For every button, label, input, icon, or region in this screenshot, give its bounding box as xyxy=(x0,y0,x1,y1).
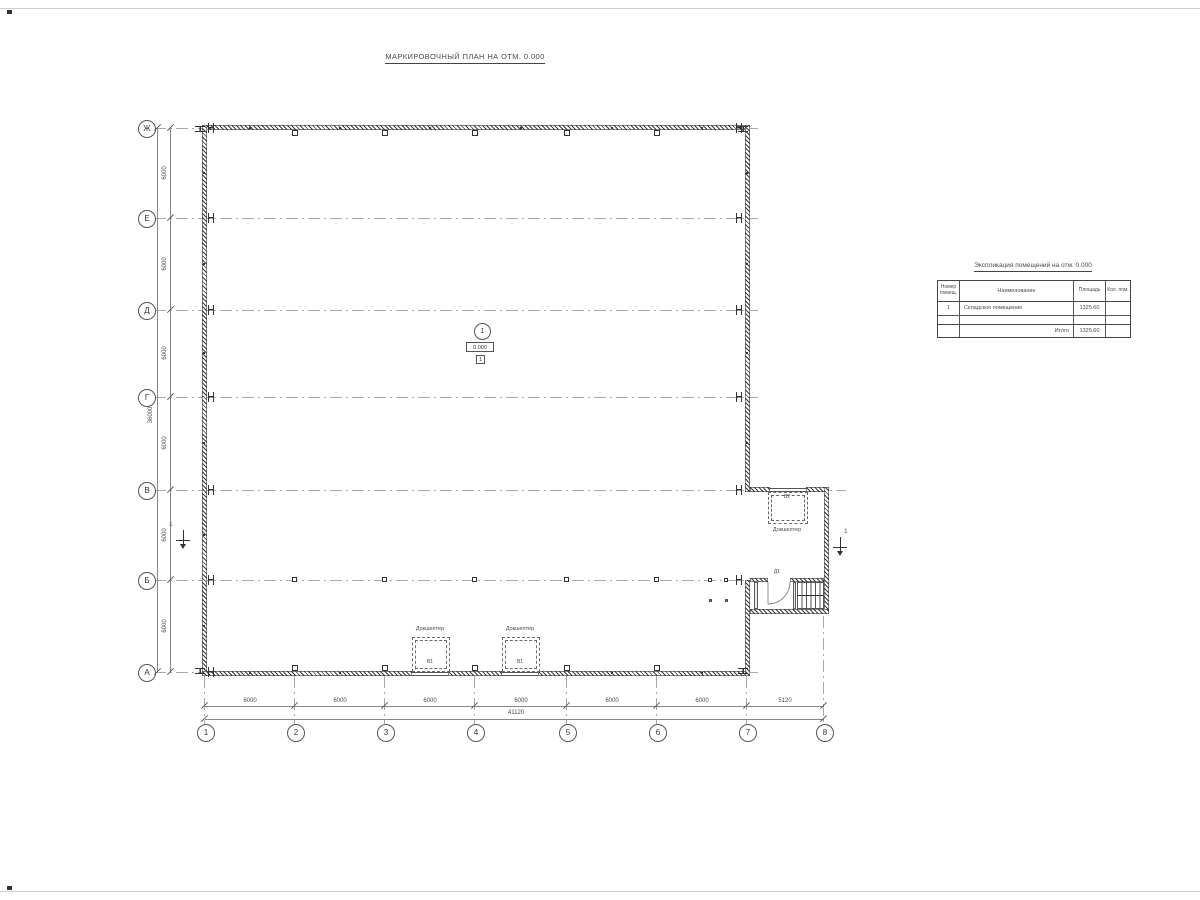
cell-empty xyxy=(1106,325,1130,337)
wall-stud-dot xyxy=(203,625,205,627)
section-mark-line xyxy=(183,530,184,544)
dim-label: 6000 xyxy=(514,698,527,704)
plan-title: МАРКИРОВОЧНЫЙ ПЛАН НА ОТМ. 0.000 xyxy=(330,52,600,61)
wall-stud-dot xyxy=(746,172,748,174)
ibeam-column-mark xyxy=(736,485,742,495)
floor-type-box: 1 xyxy=(476,355,485,364)
section-mark-line xyxy=(833,547,847,548)
wall-stud-dot xyxy=(611,127,613,129)
axis-line-4 xyxy=(474,676,475,724)
sheet-corner-mark xyxy=(7,886,12,890)
dim-line-left-inner xyxy=(170,128,171,672)
wall-stud-dot xyxy=(746,352,748,354)
ibeam-column-mark xyxy=(736,575,742,585)
table-row: 1 Складское помещение 1325.60 xyxy=(938,302,1130,316)
dim-label: 6000 xyxy=(162,619,168,632)
wall-left xyxy=(202,125,207,676)
section-mark-line xyxy=(176,540,190,541)
wall-bottom-seg xyxy=(202,671,412,676)
axis-bubble-1: 1 xyxy=(197,724,215,742)
axis-line-5 xyxy=(566,676,567,724)
axis-bubble-v: В xyxy=(138,482,156,500)
dock-shelter-label: Докшелтер xyxy=(506,626,534,632)
vestibule-wall xyxy=(754,582,758,609)
dim-label: 6000 xyxy=(605,698,618,704)
wall-right-upper xyxy=(745,125,750,492)
ibeam-column-mark xyxy=(195,668,205,674)
axis-bubble-g: Г xyxy=(138,389,156,407)
wall-stud-dot xyxy=(249,672,251,674)
dock-gate-opening xyxy=(502,672,538,676)
dim-total-label: 36000 xyxy=(148,407,154,424)
ibeam-column-mark xyxy=(738,126,748,132)
axis-line-2 xyxy=(294,676,295,724)
annex-wall-top-seg xyxy=(750,487,770,492)
table-total-row: Итого 1325.60 xyxy=(938,325,1130,337)
section-arrow-icon xyxy=(180,544,186,549)
axis-bubble-4: 4 xyxy=(467,724,485,742)
wall-stud-dot xyxy=(746,263,748,265)
dim-label: 6000 xyxy=(162,528,168,541)
wall-stud-dot xyxy=(339,672,341,674)
sheet-corner-mark xyxy=(7,10,12,14)
dock-shelter xyxy=(502,637,540,672)
wall-stud-dot xyxy=(746,442,748,444)
ibeam-column-mark xyxy=(208,213,214,223)
column-mark xyxy=(564,665,570,671)
column-mark xyxy=(472,577,477,582)
cell-total-area: 1325.60 xyxy=(1074,325,1106,337)
section-mark-line xyxy=(840,537,841,551)
column-mark xyxy=(292,577,297,582)
wall-bottom-seg xyxy=(448,671,502,676)
vestibule-divider-wall xyxy=(793,582,796,609)
axis-bubble-7: 7 xyxy=(739,724,757,742)
column-mark xyxy=(654,665,660,671)
axis-bubble-6: 6 xyxy=(649,724,667,742)
dim-label: 6000 xyxy=(333,698,346,704)
column-mark xyxy=(725,599,728,602)
sheet-edge-top xyxy=(0,8,1200,9)
column-mark xyxy=(724,578,728,582)
wall-right-lower xyxy=(745,580,750,676)
axis-line-g xyxy=(154,397,758,398)
dim-label: 6000 xyxy=(162,346,168,359)
col-header-number: Номер помещ. xyxy=(938,281,960,301)
column-mark xyxy=(709,599,712,602)
section-mark-label: 1 xyxy=(169,521,173,528)
wall-stud-dot xyxy=(701,127,703,129)
ibeam-column-mark xyxy=(208,305,214,315)
ibeam-column-mark xyxy=(208,392,214,402)
wall-stud-dot xyxy=(611,672,613,674)
ibeam-column-mark xyxy=(208,485,214,495)
ibeam-column-mark xyxy=(208,123,214,133)
axis-line-e xyxy=(154,218,758,219)
ibeam-column-mark xyxy=(195,126,205,132)
annex-wall-bottom xyxy=(750,609,829,614)
column-mark xyxy=(564,130,570,136)
dim-total-label: 41120 xyxy=(508,710,524,716)
axis-line-b xyxy=(154,580,758,581)
cell-room-number: 1 xyxy=(938,302,960,315)
column-mark xyxy=(472,130,478,136)
column-mark xyxy=(382,130,388,136)
dim-label: 5120 xyxy=(778,698,791,704)
axis-line-8 xyxy=(823,616,824,724)
axis-line-3 xyxy=(384,676,385,724)
wall-bottom-seg xyxy=(538,671,750,676)
wall-stud-dot xyxy=(339,127,341,129)
sheet-edge-bottom xyxy=(0,891,1200,892)
axis-bubble-2: 2 xyxy=(287,724,305,742)
dim-label: 6000 xyxy=(162,166,168,179)
wall-stud-dot xyxy=(429,127,431,129)
wall-stud-dot xyxy=(203,352,205,354)
drawing-sheet: МАРКИРОВОЧНЫЙ ПЛАН НА ОТМ. 0.000 Ж Е Д Г… xyxy=(0,0,1200,900)
dock-shelter xyxy=(412,637,450,672)
annex-wall-right xyxy=(824,487,829,614)
col-header-area: Площадь xyxy=(1074,281,1106,301)
table-title-text: Экспликация помещений на отм. 0.000 xyxy=(974,262,1092,272)
cell-empty xyxy=(938,325,960,337)
cell-empty xyxy=(938,316,960,324)
cell-empty xyxy=(960,316,1074,324)
wall-stud-dot xyxy=(520,127,522,129)
cell-room-count xyxy=(1106,302,1130,315)
axis-line-6 xyxy=(656,676,657,724)
ibeam-column-mark xyxy=(736,213,742,223)
column-mark xyxy=(472,665,478,671)
cell-room-area: 1325.60 xyxy=(1074,302,1106,315)
column-mark xyxy=(708,578,712,582)
dim-label: 6000 xyxy=(423,698,436,704)
table-header-row: Номер помещ. Наименование Площадь Кол. п… xyxy=(938,281,1130,302)
dim-label: 6000 xyxy=(162,257,168,270)
axis-bubble-e: Е xyxy=(138,210,156,228)
column-mark xyxy=(564,577,569,582)
table-row-empty xyxy=(938,316,1130,325)
axis-line-d xyxy=(154,310,758,311)
dim-label: 6000 xyxy=(162,436,168,449)
col-header-count: Кол. пом. xyxy=(1106,281,1130,301)
axis-bubble-d: Д xyxy=(138,302,156,320)
axis-bubble-8: 8 xyxy=(816,724,834,742)
dock-shelter-label: Докшелтер xyxy=(416,626,444,632)
cell-empty xyxy=(1106,316,1130,324)
ibeam-column-mark xyxy=(736,305,742,315)
dock-gate-mark: В2 xyxy=(784,494,790,500)
axis-bubble-5: 5 xyxy=(559,724,577,742)
axis-bubble-b: Б xyxy=(138,572,156,590)
dim-label: 6000 xyxy=(695,698,708,704)
column-mark xyxy=(382,577,387,582)
column-mark xyxy=(292,130,298,136)
ibeam-column-mark xyxy=(736,392,742,402)
room-elevation-box: 0.000 xyxy=(466,342,494,352)
dock-gate-mark: В1 xyxy=(427,659,433,665)
wall-stud-dot xyxy=(701,672,703,674)
dim-line-bottom-inner xyxy=(205,706,824,707)
wall-stud-dot xyxy=(203,534,205,536)
room-number-bubble: 1 xyxy=(474,323,491,340)
stairroom-wall-seg xyxy=(750,578,768,582)
cell-room-name: Складское помещение xyxy=(960,302,1074,315)
wall-stud-dot xyxy=(249,127,251,129)
ibeam-column-mark xyxy=(208,575,214,585)
explication-table: Номер помещ. Наименование Площадь Кол. п… xyxy=(937,280,1131,338)
axis-bubble-3: 3 xyxy=(377,724,395,742)
column-mark xyxy=(292,665,298,671)
ibeam-column-mark xyxy=(738,668,748,674)
wall-stud-dot xyxy=(203,172,205,174)
cell-total-label: Итого xyxy=(960,325,1074,337)
section-mark-label: 1 xyxy=(844,528,848,535)
section-arrow-icon xyxy=(837,551,843,556)
door-swing-arc xyxy=(768,582,790,604)
door-swing-overlay xyxy=(0,0,1200,900)
dock-gate-opening xyxy=(412,672,448,676)
dim-label: 6000 xyxy=(243,698,256,704)
dim-line-left-outer xyxy=(157,128,158,672)
stair-flight-line xyxy=(797,595,824,596)
cell-empty xyxy=(1074,316,1106,324)
col-header-name: Наименование xyxy=(960,281,1074,301)
column-mark xyxy=(654,577,659,582)
dock-shelter-label: Докшелтер xyxy=(773,527,801,533)
dim-line-bottom-outer xyxy=(205,719,824,720)
wall-stud-dot xyxy=(203,263,205,265)
column-mark xyxy=(382,665,388,671)
wall-stud-dot xyxy=(203,442,205,444)
plan-title-text: МАРКИРОВОЧНЫЙ ПЛАН НА ОТМ. 0.000 xyxy=(385,52,544,64)
axis-line-7 xyxy=(746,676,747,724)
door-mark-label: Д1 xyxy=(774,569,780,575)
table-title: Экспликация помещений на отм. 0.000 xyxy=(930,262,1136,269)
axis-line-v xyxy=(154,490,846,491)
dock-gate-mark: В1 xyxy=(517,659,523,665)
column-mark xyxy=(654,130,660,136)
ibeam-column-mark xyxy=(208,667,214,677)
